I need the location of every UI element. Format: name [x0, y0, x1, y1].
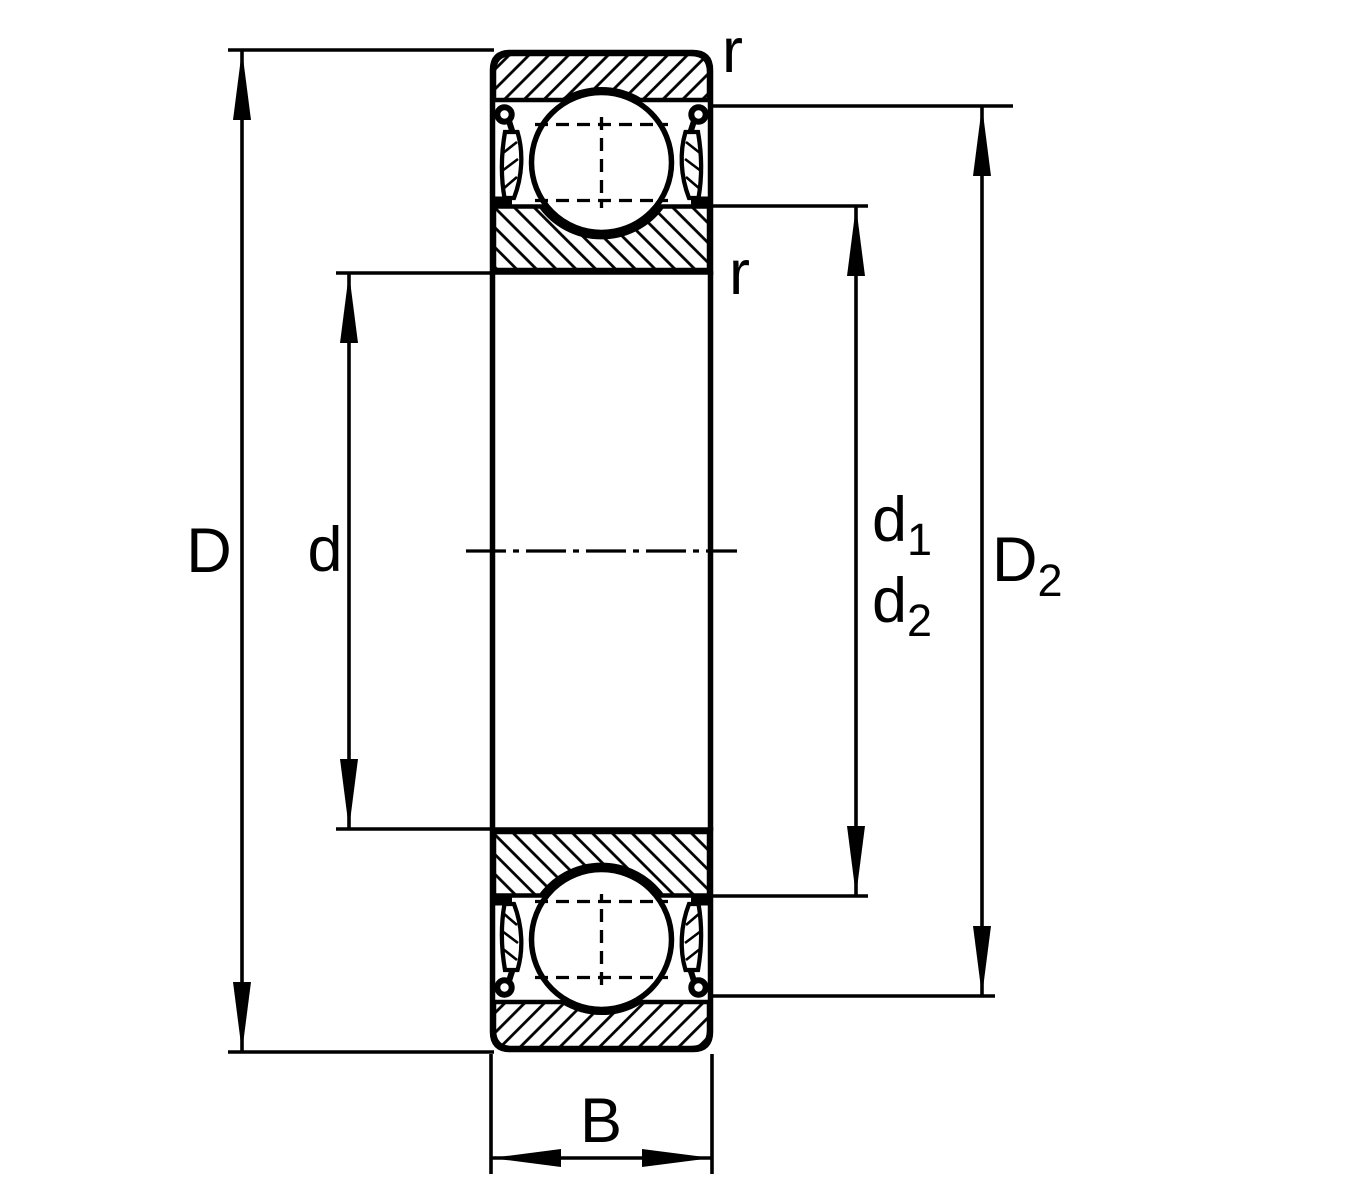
dimension-D	[228, 50, 494, 1052]
label-outer-diameter-D: D	[186, 516, 232, 586]
label-shoulder-diameter-d1: d1	[872, 485, 932, 565]
label-bore-diameter-d: d	[307, 515, 342, 585]
label-d1-subscript: 1	[907, 514, 932, 565]
label-shoulder-diameter-d2: d2	[872, 566, 932, 646]
bearing-section-bottom	[492, 830, 711, 1050]
label-D2-base: D	[992, 525, 1038, 595]
ball-bottom	[532, 870, 672, 1010]
label-D2-subscript: 2	[1038, 555, 1063, 606]
bearing-dimension-diagram: D d d1 d2 D2 B r r	[0, 0, 1350, 1200]
label-width-B: B	[580, 1086, 622, 1156]
label-d2-subscript: 2	[907, 595, 932, 646]
label-d2-base: d	[872, 566, 907, 636]
label-chamfer-radius-r-mid: r	[729, 238, 750, 308]
label-d1-base: d	[872, 485, 907, 555]
ball-top	[532, 93, 672, 233]
dimension-D2	[709, 106, 1013, 996]
label-recess-diameter-D2: D2	[992, 525, 1063, 606]
label-chamfer-radius-r-top: r	[722, 16, 743, 86]
bearing-section-top	[492, 53, 711, 273]
drawing-canvas: D d d1 d2 D2 B r r	[0, 0, 1350, 1200]
